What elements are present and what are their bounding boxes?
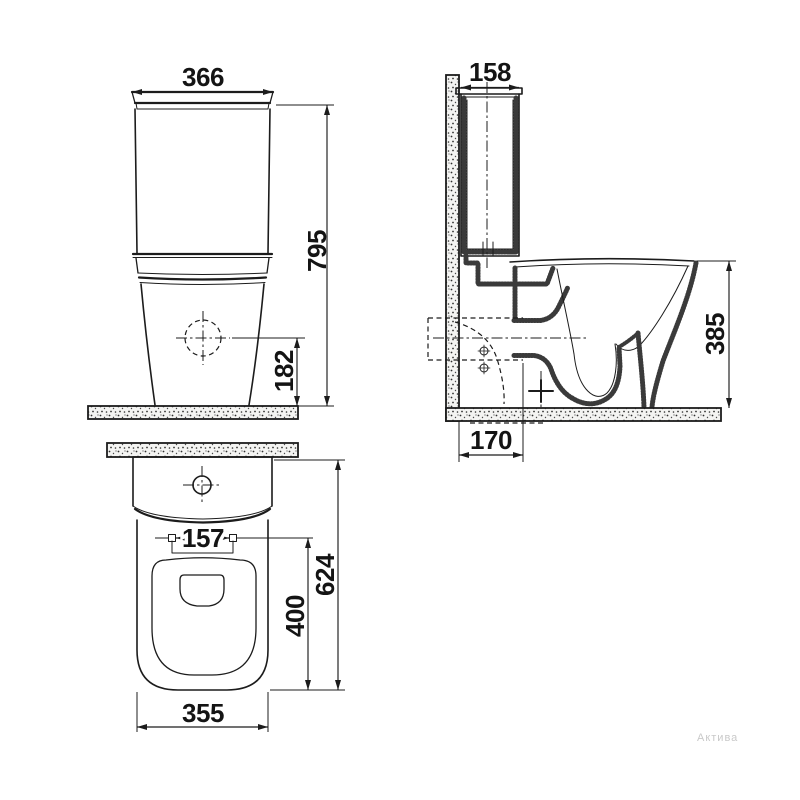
top-flush-button [183,466,221,504]
dim-label-385: 385 [700,313,730,355]
technical-drawing-toilet: 366 795 182 [0,0,800,800]
dim-label-355: 355 [182,698,224,728]
dim-label-158: 158 [469,57,511,87]
dim-label-795: 795 [302,230,332,272]
outlet-position-cross [529,380,553,402]
top-wall-strip [107,443,298,457]
side-wall [446,75,459,421]
dim-label-170: 170 [470,425,512,455]
watermark-text: Актива [697,732,738,744]
dim-label-624: 624 [310,553,340,596]
drawing-canvas: 366 795 182 [0,0,800,800]
top-dim-157: 157 [155,523,313,553]
top-dim-355: 355 [137,692,268,732]
front-dim-366: 366 [132,62,273,92]
side-dim-158: 158 [461,57,519,88]
front-cistern [132,92,273,285]
front-dim-182: 182 [232,338,305,406]
side-bowl-section [466,256,696,407]
dim-label-157: 157 [182,523,224,553]
side-cistern-section [456,82,522,268]
side-floor-strip [446,408,721,421]
dim-label-366: 366 [182,62,224,92]
top-dim-624: 624 [274,460,345,690]
top-water-surface [180,575,224,606]
seat-hole-right [230,535,237,542]
seat-hole-left [169,535,176,542]
front-drain-hole [176,311,230,365]
dim-label-182: 182 [269,350,299,392]
side-view: 158 385 170 [428,57,736,462]
dim-label-400: 400 [280,595,310,637]
front-floor-strip [88,406,298,419]
top-view: 157 400 624 355 [107,443,345,732]
side-dim-385: 385 [697,261,736,408]
front-view: 366 795 182 [88,62,334,419]
